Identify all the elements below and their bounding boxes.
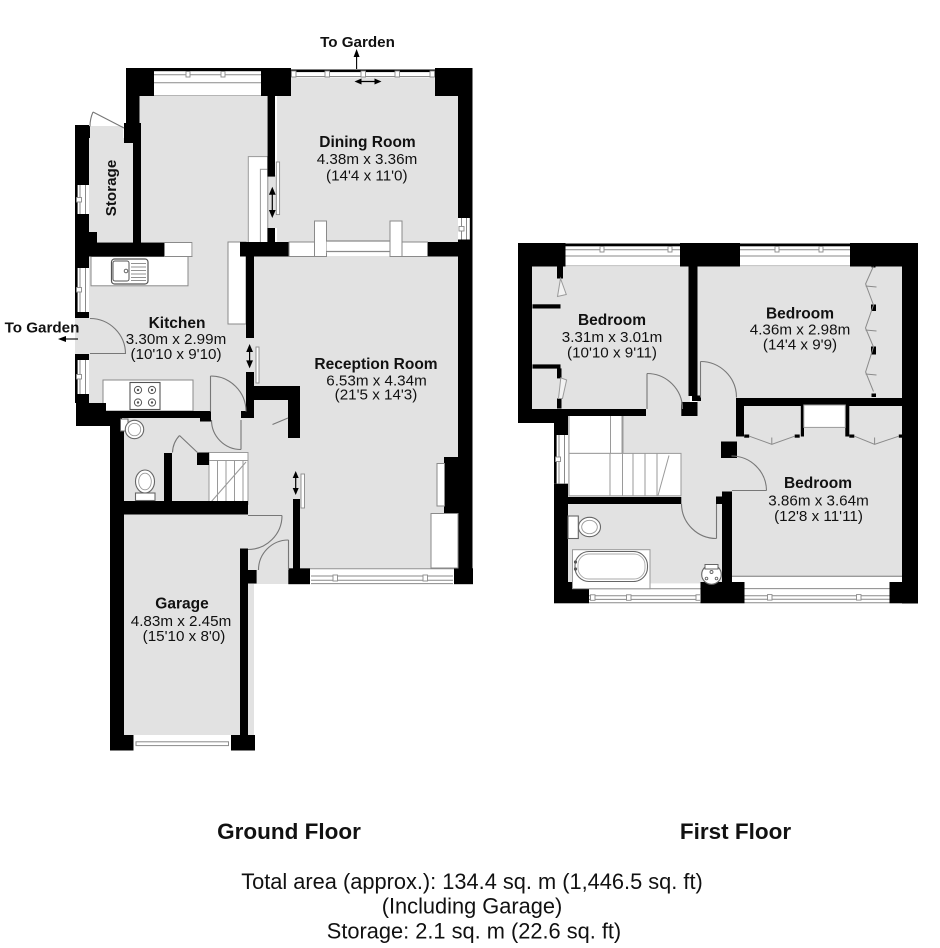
svg-text:To Garden: To Garden: [5, 320, 80, 337]
svg-text:(Including Garage): (Including Garage): [382, 894, 563, 919]
svg-text:Total area (approx.): 134.4 sq: Total area (approx.): 134.4 sq. m (1,446…: [241, 869, 703, 894]
svg-text:To Garden: To Garden: [320, 34, 395, 51]
svg-text:Storage: 2.1 sq. m (22.6 sq. f: Storage: 2.1 sq. m (22.6 sq. ft): [327, 919, 621, 944]
svg-text:(21'5 x 14'3): (21'5 x 14'3): [335, 387, 418, 404]
svg-text:(12'8 x 11'11): (12'8 x 11'11): [774, 508, 863, 525]
svg-text:Bedroom: Bedroom: [578, 312, 646, 329]
svg-text:(10'10 x 9'10): (10'10 x 9'10): [130, 346, 221, 363]
svg-text:Bedroom: Bedroom: [784, 475, 852, 492]
svg-text:(14'4 x 9'9): (14'4 x 9'9): [763, 337, 837, 354]
svg-text:Dining Room: Dining Room: [319, 134, 415, 151]
svg-text:Garage: Garage: [155, 596, 209, 613]
svg-text:(15'10 x 8'0): (15'10 x 8'0): [143, 628, 226, 645]
svg-text:Ground Floor: Ground Floor: [217, 819, 361, 844]
svg-text:Storage: Storage: [103, 160, 120, 217]
svg-text:3.31m x 3.01m: 3.31m x 3.01m: [562, 329, 662, 346]
svg-text:(10'10 x 9'11): (10'10 x 9'11): [567, 345, 657, 362]
svg-text:3.86m x 3.64m: 3.86m x 3.64m: [768, 493, 868, 510]
svg-text:Kitchen: Kitchen: [149, 315, 206, 332]
svg-text:(14'4 x 11'0): (14'4 x 11'0): [326, 168, 408, 185]
svg-text:4.38m x 3.36m: 4.38m x 3.36m: [317, 151, 417, 168]
svg-text:Reception Room: Reception Room: [314, 356, 437, 373]
svg-text:Bedroom: Bedroom: [766, 306, 834, 323]
svg-text:First Floor: First Floor: [680, 819, 791, 844]
